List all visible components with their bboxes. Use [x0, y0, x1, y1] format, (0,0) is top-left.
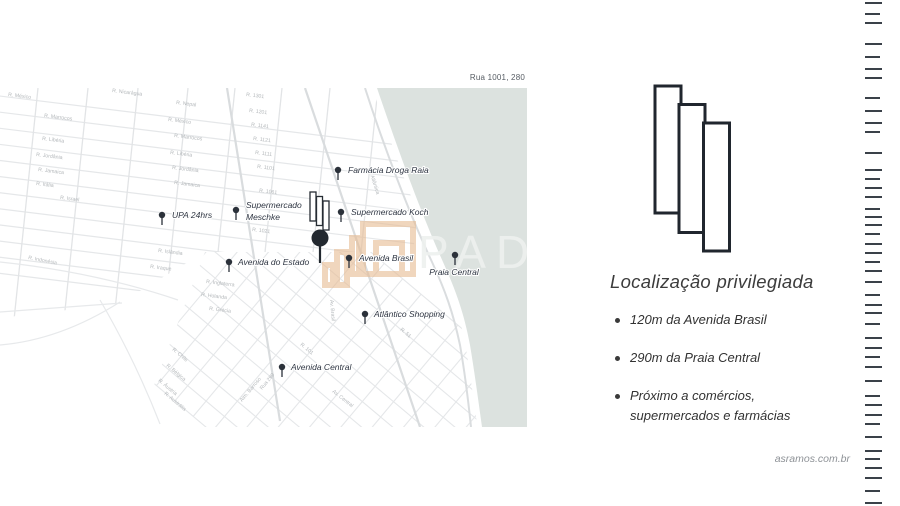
street-label: R. Itália [36, 181, 54, 189]
street-label: R. 1061 [259, 188, 278, 196]
ruler-mark [865, 366, 882, 368]
ruler-mark [865, 2, 882, 4]
bullet-item: 120m da Avenida Brasil [612, 310, 810, 330]
ruler-mark [865, 196, 882, 198]
map-pin-icon [362, 311, 368, 317]
ruler-mark [865, 304, 882, 306]
ruler-mark [865, 270, 882, 272]
bullet-item: 290m da Praia Central [612, 348, 810, 368]
ruler-mark [865, 110, 882, 112]
ruler-mark [865, 294, 880, 296]
map-address-label: Rua 1001, 280 [0, 73, 525, 82]
ruler-mark [865, 169, 882, 171]
street-label: R. Libéria [42, 136, 65, 145]
poi-label: Farmácia Droga Raia [348, 165, 429, 175]
map-canvas: PADIL R. MéxicoR. NicaráguaR. NepalR. Ma… [0, 88, 527, 427]
ruler-mark [865, 43, 882, 45]
poi-atlantico-shopping: Atlântico Shopping [362, 309, 445, 324]
street-label: R. Iraque [150, 264, 172, 273]
street-label: R. 1201 [249, 108, 268, 116]
ruler-mark [865, 56, 880, 58]
ruler-mark [865, 436, 882, 438]
map-pin-icon [233, 207, 239, 213]
ruler-mark [865, 216, 882, 218]
slide: Rua 1001, 280 [0, 0, 900, 506]
ruler-mark [865, 312, 882, 314]
ruler-mark [865, 450, 882, 452]
street-label: R. 1301 [246, 92, 265, 100]
website-label: asramos.com.br [775, 453, 850, 465]
poi-label: Atlântico Shopping [373, 309, 445, 319]
ruler-mark [865, 131, 880, 133]
map-pin-icon [226, 259, 232, 265]
ruler-mark [865, 187, 882, 189]
ruler-mark [865, 502, 882, 504]
street-label: R. Jordânia [36, 152, 63, 161]
poi-upa-24hrs: UPA 24hrs [159, 210, 213, 225]
poi-label: Avenida Central [290, 362, 352, 372]
poi-label: Praia Central [429, 267, 480, 277]
ruler-mark [865, 243, 882, 245]
street-label: R. Jordânia [172, 165, 199, 174]
street-label: R. 1121 [253, 136, 271, 144]
map-pin-icon [338, 209, 344, 215]
street-label: R. México [8, 92, 32, 101]
bullet-item: Próximo a comércios, supermercados e far… [612, 386, 810, 426]
street-label: R. Marrocos [44, 113, 73, 122]
ruler-mark [865, 252, 882, 254]
ruler-mark [865, 458, 880, 460]
ruler-mark [865, 380, 882, 382]
street-label: R. Grécia [209, 306, 232, 315]
ruler-mark [865, 423, 880, 425]
property-building-icon [310, 192, 329, 230]
street-label: R. Inglaterra [206, 279, 235, 288]
ruler-mark [865, 395, 880, 397]
ruler-mark [865, 414, 882, 416]
location-map: PADIL R. MéxicoR. NicaráguaR. NepalR. Ma… [0, 88, 527, 427]
ruler-mark [865, 337, 882, 339]
map-pin-icon [279, 364, 285, 370]
ruler-mark [865, 122, 882, 124]
map-pin-icon [159, 212, 165, 218]
ruler-mark [865, 490, 880, 492]
street-label: R. Indonésia [28, 255, 58, 266]
ruler-mark [865, 281, 882, 283]
ruler-mark [865, 356, 880, 358]
ruler-mark [865, 22, 882, 24]
ruler-mark [865, 347, 882, 349]
page-title: Localização privilegiada [610, 271, 814, 293]
poi-avenida-central: Avenida Central [279, 362, 353, 377]
poi-label: Supermercado Koch [351, 207, 429, 217]
ruler-mark [865, 477, 882, 479]
ruler-mark [865, 404, 882, 406]
ruler-mark [865, 13, 880, 15]
ruler-mark [865, 233, 880, 235]
street-label: R. México [168, 117, 192, 126]
map-pin-icon [346, 255, 352, 261]
street-label: R. Marrocos [174, 133, 203, 142]
ruler-marks-decoration [864, 0, 886, 506]
map-pin-icon [452, 252, 458, 258]
street-label: R. 1111 [255, 150, 273, 158]
street-label: Alm. Barroso [239, 376, 263, 403]
ruler-mark [865, 152, 882, 154]
ruler-mark [865, 323, 880, 325]
ruler-mark [865, 97, 880, 99]
poi-supermercado-meschke: SupermercadoMeschke [233, 200, 302, 222]
map-pin-icon [335, 167, 341, 173]
street-label: R. Israel [60, 195, 80, 203]
ruler-mark [865, 224, 882, 226]
ruler-mark [865, 68, 882, 70]
ruler-mark [865, 261, 880, 263]
ruler-mark [865, 178, 880, 180]
street-label: R. Nepal [176, 100, 197, 108]
poi-label: Avenida do Estado [237, 257, 309, 267]
ruler-mark [865, 208, 880, 210]
street-label: R. 1021 [252, 227, 271, 235]
street-label: R. 1101 [257, 164, 275, 172]
street-label: Av. Brasil [328, 300, 336, 322]
poi-label: SupermercadoMeschke [246, 200, 302, 222]
brand-logo [648, 80, 742, 258]
street-label: R. Bélgica [165, 363, 187, 383]
ruler-mark [865, 467, 882, 469]
street-label: R. Holanda [201, 292, 228, 301]
poi-label: Avenida Brasil [358, 253, 414, 263]
poi-label: UPA 24hrs [172, 210, 213, 220]
ruler-mark [865, 77, 882, 79]
street-label: R. 1141 [251, 122, 269, 130]
benefits-list: 120m da Avenida Brasil290m da Praia Cent… [612, 310, 842, 444]
